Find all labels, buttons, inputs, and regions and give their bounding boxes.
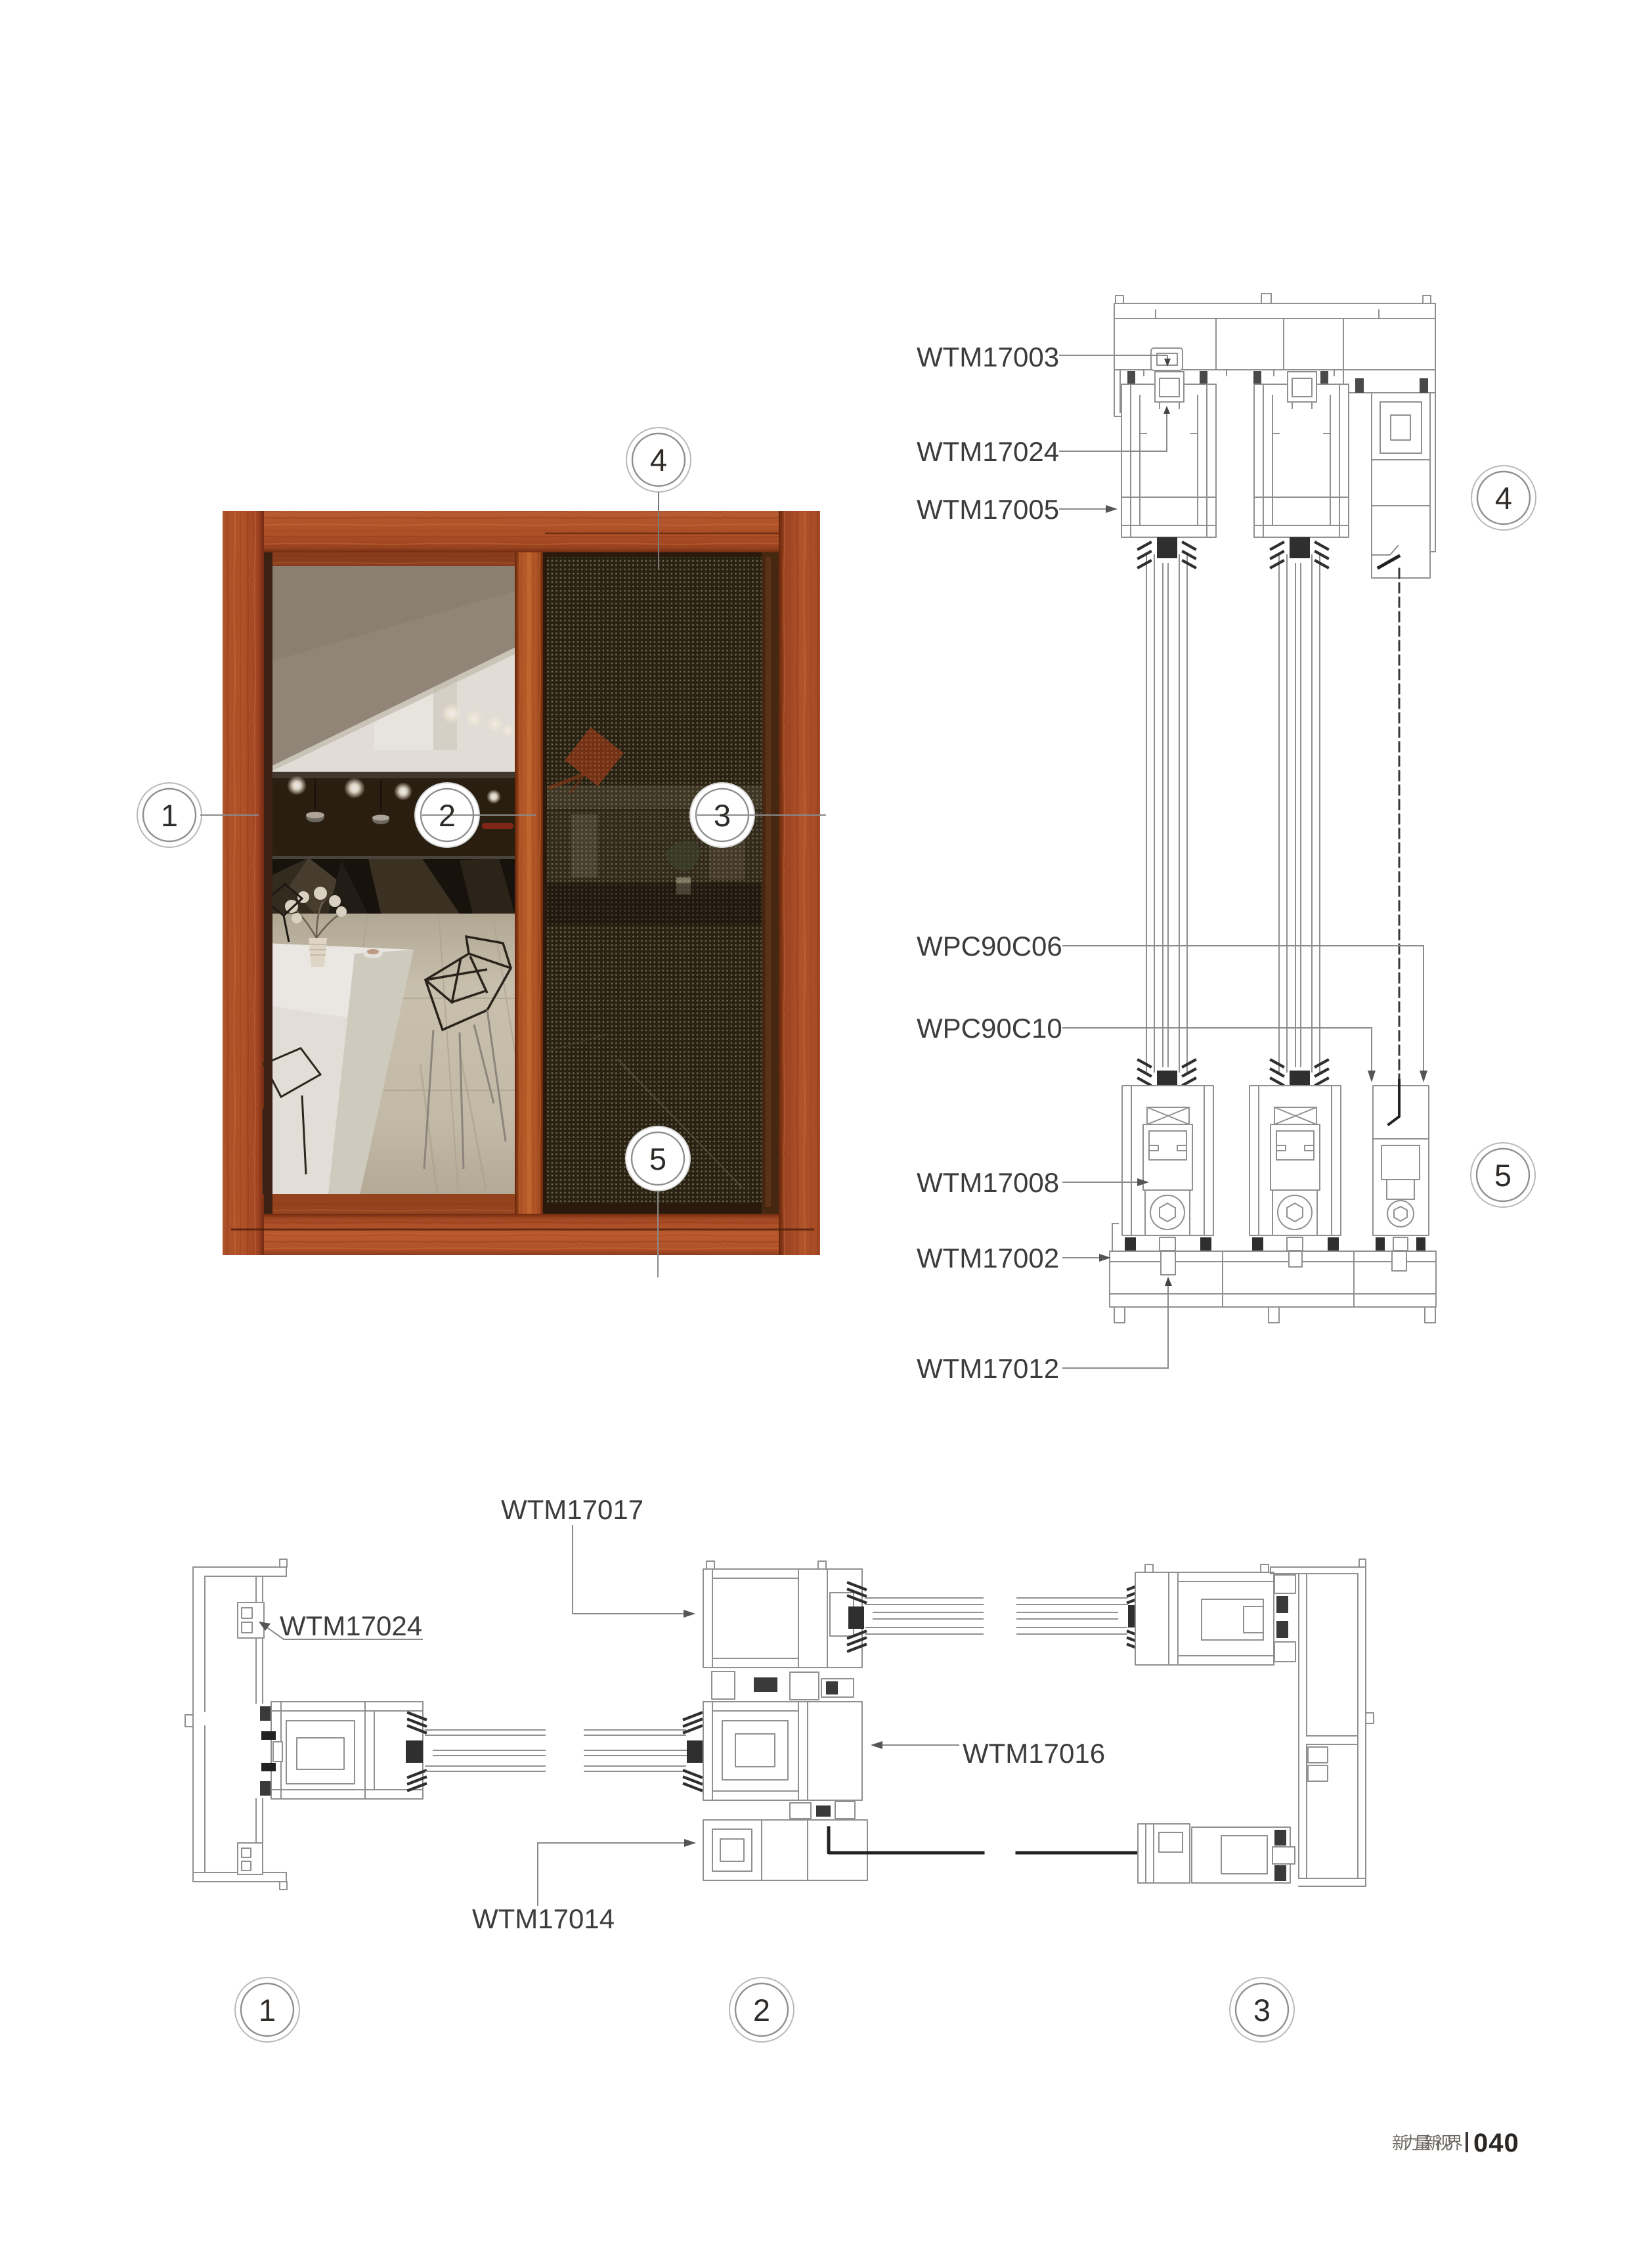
svg-text:WTM17017: WTM17017 — [501, 1494, 643, 1525]
svg-text:WTM17016: WTM17016 — [963, 1738, 1105, 1769]
svg-text:新力量.新视界: 新力量.新视界 — [1392, 2133, 1463, 2153]
svg-text:2: 2 — [753, 1993, 770, 2027]
svg-text:5: 5 — [1494, 1158, 1511, 1193]
svg-text:1: 1 — [259, 1993, 276, 2027]
svg-text:WTM17002: WTM17002 — [917, 1243, 1059, 1273]
svg-text:WTM17008: WTM17008 — [917, 1167, 1059, 1198]
svg-text:WTM17003: WTM17003 — [917, 342, 1059, 372]
svg-text:WTM17012: WTM17012 — [917, 1353, 1059, 1384]
svg-text:4: 4 — [650, 443, 667, 477]
svg-text:WTM17014: WTM17014 — [472, 1903, 615, 1934]
svg-text:WTM17024: WTM17024 — [280, 1610, 422, 1641]
svg-text:3: 3 — [714, 798, 731, 833]
svg-text:5: 5 — [649, 1141, 666, 1176]
svg-text:WTM17005: WTM17005 — [917, 494, 1059, 525]
svg-text:3: 3 — [1253, 1993, 1271, 2027]
svg-text:4: 4 — [1495, 481, 1512, 516]
svg-text:WPC90C10: WPC90C10 — [917, 1013, 1062, 1044]
svg-text:2: 2 — [439, 798, 456, 833]
svg-text:WTM17024: WTM17024 — [917, 436, 1059, 467]
svg-text:1: 1 — [161, 798, 178, 833]
svg-text:040: 040 — [1473, 2129, 1519, 2158]
svg-text:WPC90C06: WPC90C06 — [917, 931, 1062, 962]
